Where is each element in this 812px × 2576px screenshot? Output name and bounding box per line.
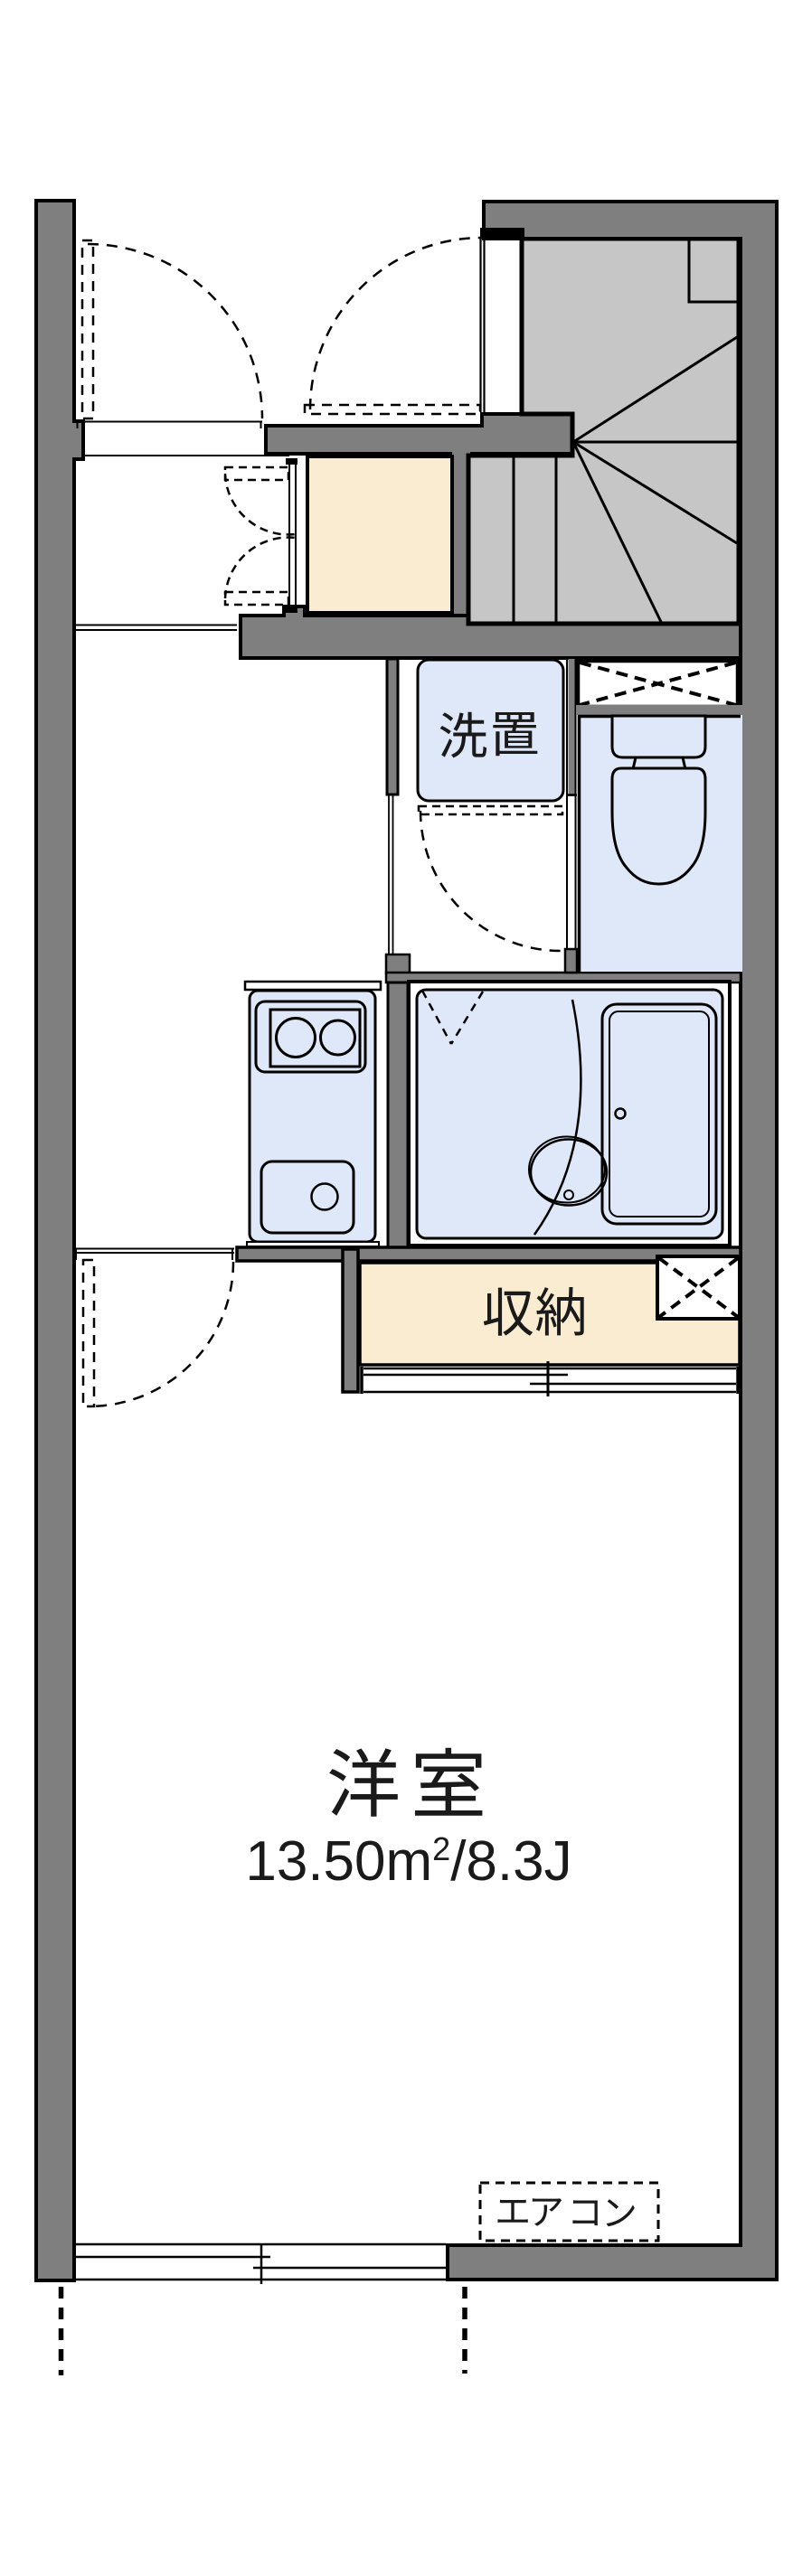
svg-text:13.50m2/8.3J: 13.50m2/8.3J (245, 1830, 571, 1893)
